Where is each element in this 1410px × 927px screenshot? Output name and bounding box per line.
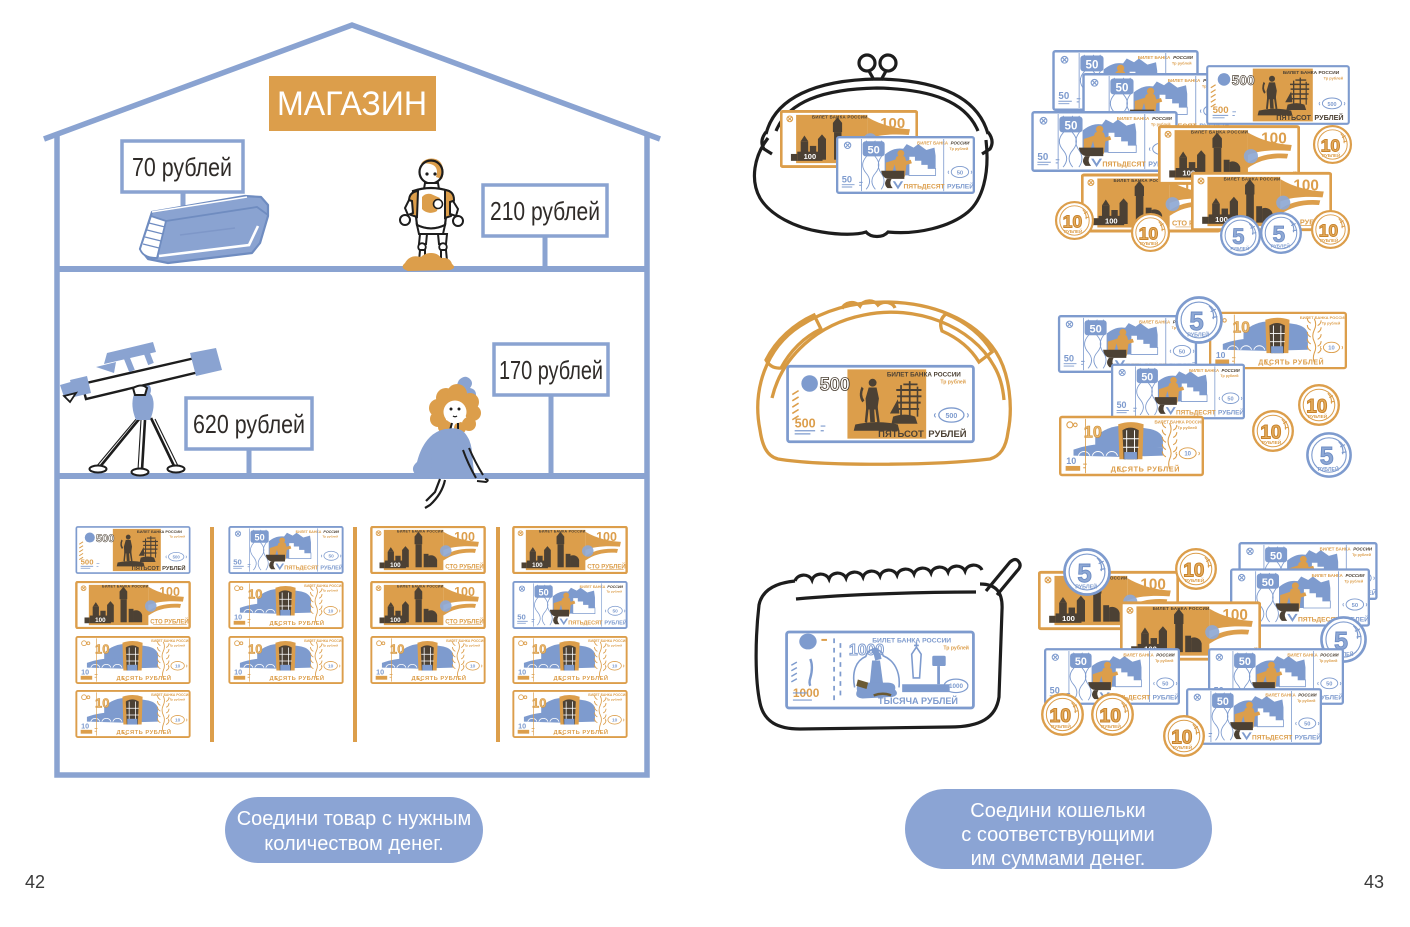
- svg-text:с соответствующими: с соответствующими: [961, 824, 1154, 846]
- svg-text:210 рублей: 210 рублей: [490, 196, 600, 226]
- svg-text:количеством денег.: количеством денег.: [264, 833, 443, 855]
- svg-text:70 рублей: 70 рублей: [132, 152, 232, 182]
- svg-text:Соедини кошельки: Соедини кошельки: [970, 800, 1145, 822]
- svg-text:Соедини товар с нужным: Соедини товар с нужным: [237, 808, 472, 830]
- svg-text:42: 42: [25, 872, 45, 892]
- svg-text:43: 43: [1364, 872, 1384, 892]
- svg-text:620 рублей: 620 рублей: [193, 409, 305, 439]
- svg-text:им суммами денег.: им суммами денег.: [971, 848, 1146, 870]
- svg-text:170 рублей: 170 рублей: [499, 355, 603, 385]
- svg-text:МАГАЗИН: МАГАЗИН: [277, 85, 427, 123]
